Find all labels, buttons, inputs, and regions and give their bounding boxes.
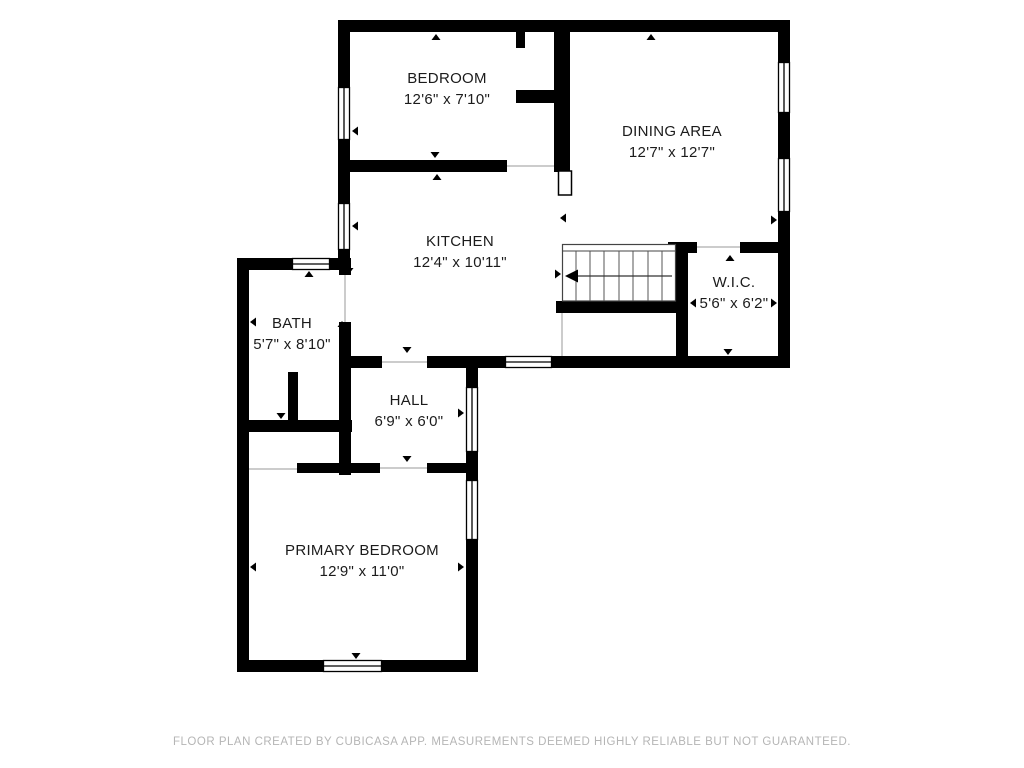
dimension-tick	[403, 347, 412, 353]
dimension-tick	[690, 299, 696, 308]
room-name: PRIMARY BEDROOM	[285, 540, 439, 561]
room-dims: 6'9" x 6'0"	[375, 411, 444, 432]
wall-segment	[554, 20, 570, 172]
dimension-tick	[433, 174, 442, 180]
window	[506, 357, 552, 368]
window	[293, 259, 330, 270]
room-name: BEDROOM	[404, 68, 490, 89]
room-dims: 12'6" x 7'10"	[404, 89, 490, 110]
dimension-tick	[771, 299, 777, 308]
room-dims: 5'6" x 6'2"	[700, 293, 769, 314]
wall-segment	[237, 258, 249, 672]
room-dims: 12'4" x 10'11"	[413, 252, 507, 273]
room-name: BATH	[253, 313, 331, 334]
dimension-tick	[352, 222, 358, 231]
floor-plan-drawing	[0, 0, 1024, 768]
wall-segment	[556, 301, 688, 313]
wall-segment	[516, 32, 525, 48]
dimension-tick	[647, 34, 656, 40]
wall-segment	[339, 322, 351, 475]
wall-segment	[676, 242, 688, 356]
room-label-kitchen: KITCHEN 12'4" x 10'11"	[413, 231, 507, 273]
room-name: DINING AREA	[622, 121, 722, 142]
dimension-tick	[403, 456, 412, 462]
window	[324, 661, 382, 672]
wall-segment	[288, 372, 298, 422]
dimension-tick	[277, 413, 286, 419]
window	[339, 204, 350, 250]
room-label-dining-area: DINING AREA 12'7" x 12'7"	[622, 121, 722, 163]
dimension-tick	[431, 152, 440, 158]
window	[339, 88, 350, 140]
room-dims: 5'7" x 8'10"	[253, 334, 331, 355]
room-label-bedroom: BEDROOM 12'6" x 7'10"	[404, 68, 490, 110]
room-label-primary-bedroom: PRIMARY BEDROOM 12'9" x 11'0"	[285, 540, 439, 582]
dimension-tick	[726, 255, 735, 261]
floor-plan: BEDROOM 12'6" x 7'10" DINING AREA 12'7" …	[0, 0, 1024, 768]
window	[779, 159, 790, 212]
room-name: KITCHEN	[413, 231, 507, 252]
dimension-tick	[458, 563, 464, 572]
dimension-tick	[305, 271, 314, 277]
dimension-tick	[560, 214, 566, 223]
room-name: W.I.C.	[700, 272, 769, 293]
dimension-tick	[724, 349, 733, 355]
wall-segment	[427, 463, 466, 473]
dimension-tick	[771, 216, 777, 225]
dimension-tick	[432, 34, 441, 40]
room-label-hall: HALL 6'9" x 6'0"	[375, 390, 444, 432]
wall-segment	[350, 356, 382, 368]
dimension-tick	[250, 563, 256, 572]
staircase	[563, 245, 676, 302]
room-label-wic: W.I.C. 5'6" x 6'2"	[700, 272, 769, 314]
room-dims: 12'9" x 11'0"	[285, 561, 439, 582]
window	[467, 481, 478, 540]
footer-disclaimer: FLOOR PLAN CREATED BY CUBICASA APP. MEAS…	[0, 736, 1024, 748]
dimension-tick	[352, 653, 361, 659]
wall-segment	[516, 90, 554, 103]
wall-segment	[552, 356, 790, 368]
wall-segment	[297, 463, 380, 473]
wall-segment	[350, 160, 507, 172]
door-leaf	[559, 171, 572, 195]
room-name: HALL	[375, 390, 444, 411]
window	[779, 63, 790, 113]
dimension-tick	[352, 127, 358, 136]
room-dims: 12'7" x 12'7"	[622, 142, 722, 163]
dimension-tick	[458, 409, 464, 418]
room-label-bath: BATH 5'7" x 8'10"	[253, 313, 331, 355]
wall-segment	[427, 356, 505, 368]
dimension-tick	[555, 270, 561, 279]
wall-segment	[740, 242, 778, 253]
window	[467, 388, 478, 452]
